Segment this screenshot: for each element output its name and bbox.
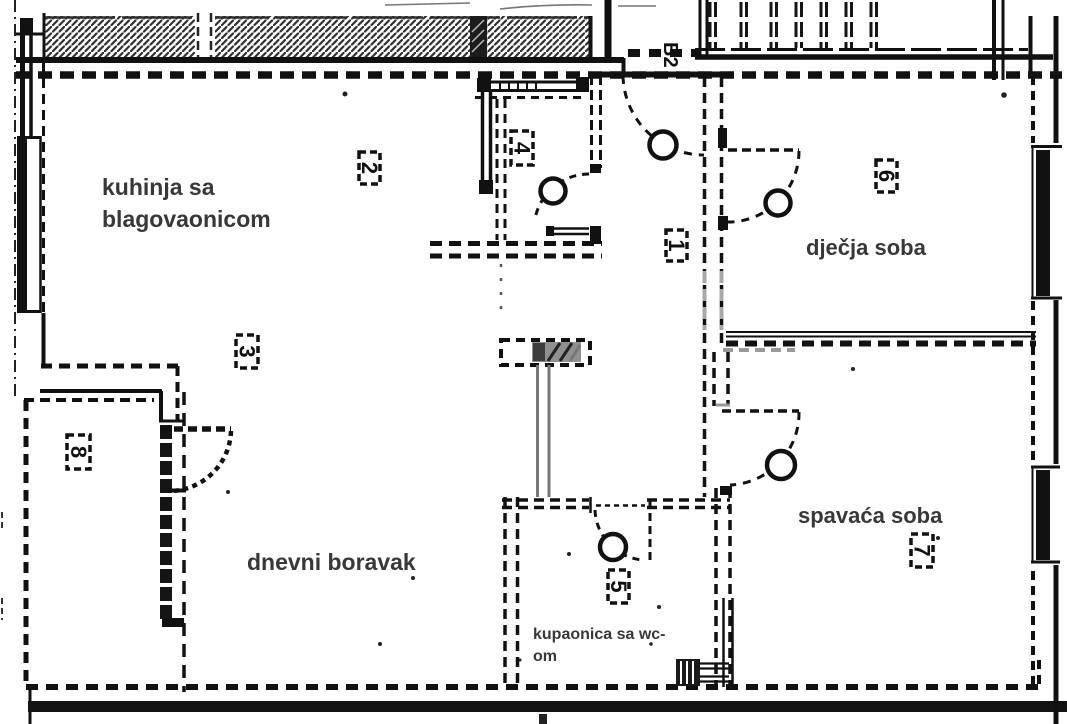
svg-text:B2: B2 [659,42,681,68]
svg-text:spavaća soba: spavaća soba [798,503,943,528]
svg-text:6: 6 [874,170,899,182]
svg-text:1: 1 [664,239,689,251]
svg-text:8: 8 [66,446,91,458]
svg-text:kupaonica sa wc-: kupaonica sa wc- [533,626,666,643]
svg-text:blagovaonicom: blagovaonicom [102,206,271,232]
svg-text:kuhinja sa: kuhinja sa [102,174,215,200]
svg-text:dnevni boravak: dnevni boravak [247,549,416,575]
svg-text:3: 3 [235,345,260,357]
svg-text:2: 2 [357,162,382,174]
svg-text:dječja soba: dječja soba [806,235,927,260]
svg-text:om: om [533,648,557,665]
svg-text:5: 5 [606,580,631,592]
svg-text:4: 4 [510,142,535,155]
svg-text:7: 7 [910,544,935,556]
